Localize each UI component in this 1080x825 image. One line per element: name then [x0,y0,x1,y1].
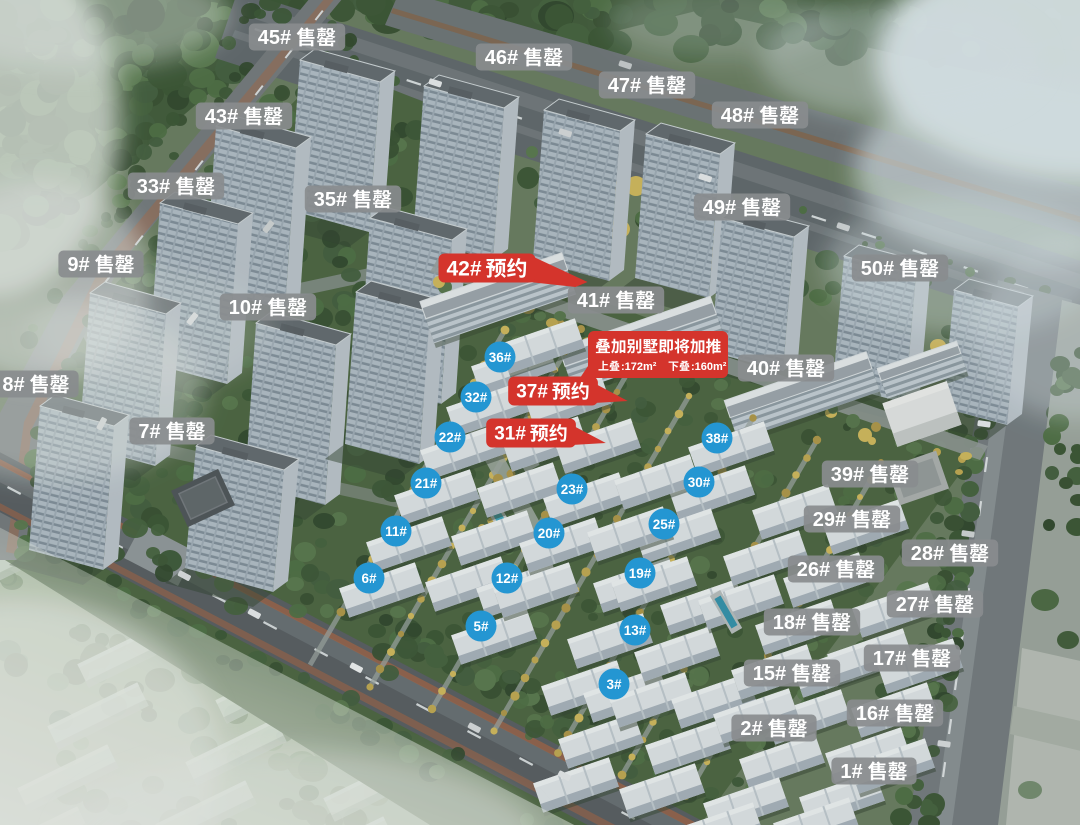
svg-text:46#: 46# [485,47,518,69]
svg-text:50#: 50# [861,258,894,280]
svg-text:23#: 23# [561,482,584,497]
svg-text:41#: 41# [577,290,610,312]
svg-text:35#: 35# [314,189,347,211]
svg-text:49#: 49# [703,197,736,219]
svg-text:2#: 2# [740,718,762,740]
svg-text:17#: 17# [873,648,906,670]
svg-text:32#: 32# [465,390,488,405]
svg-text:11#: 11# [385,524,407,539]
svg-text:45#: 45# [258,27,291,49]
svg-text:8#: 8# [2,374,24,396]
svg-text:43#: 43# [205,106,238,128]
svg-text:15#: 15# [753,663,786,685]
svg-text:39#: 39# [831,464,864,486]
svg-text::160m²: :160m² [691,361,727,373]
svg-text:47#: 47# [608,75,641,97]
svg-text:38#: 38# [706,431,729,446]
svg-text:9#: 9# [67,254,89,276]
svg-text:21#: 21# [415,476,438,491]
svg-text:3#: 3# [606,677,622,692]
svg-text:18#: 18# [773,612,806,634]
svg-text:40#: 40# [747,358,780,380]
svg-text:1#: 1# [840,761,862,783]
svg-text:42#: 42# [447,258,482,281]
svg-text:27#: 27# [896,594,929,616]
svg-text:31#: 31# [494,424,526,445]
svg-text::172m²: :172m² [621,361,657,373]
svg-text:30#: 30# [688,475,711,490]
svg-text:10#: 10# [229,297,262,319]
svg-text:29#: 29# [813,509,846,531]
svg-text:48#: 48# [721,105,754,127]
svg-text:37#: 37# [516,382,548,403]
svg-text:19#: 19# [629,566,652,581]
svg-text:12#: 12# [496,571,519,586]
svg-text:33#: 33# [137,176,170,198]
svg-text:25#: 25# [653,517,676,532]
svg-text:6#: 6# [361,571,377,586]
svg-text:13#: 13# [624,623,647,638]
svg-text:36#: 36# [489,350,512,365]
svg-text:7#: 7# [138,421,160,443]
svg-text:16#: 16# [856,703,889,725]
svg-text:20#: 20# [538,526,561,541]
svg-text:22#: 22# [439,430,462,445]
svg-text:26#: 26# [797,559,830,581]
svg-text:28#: 28# [911,543,944,565]
svg-text:5#: 5# [473,619,489,634]
